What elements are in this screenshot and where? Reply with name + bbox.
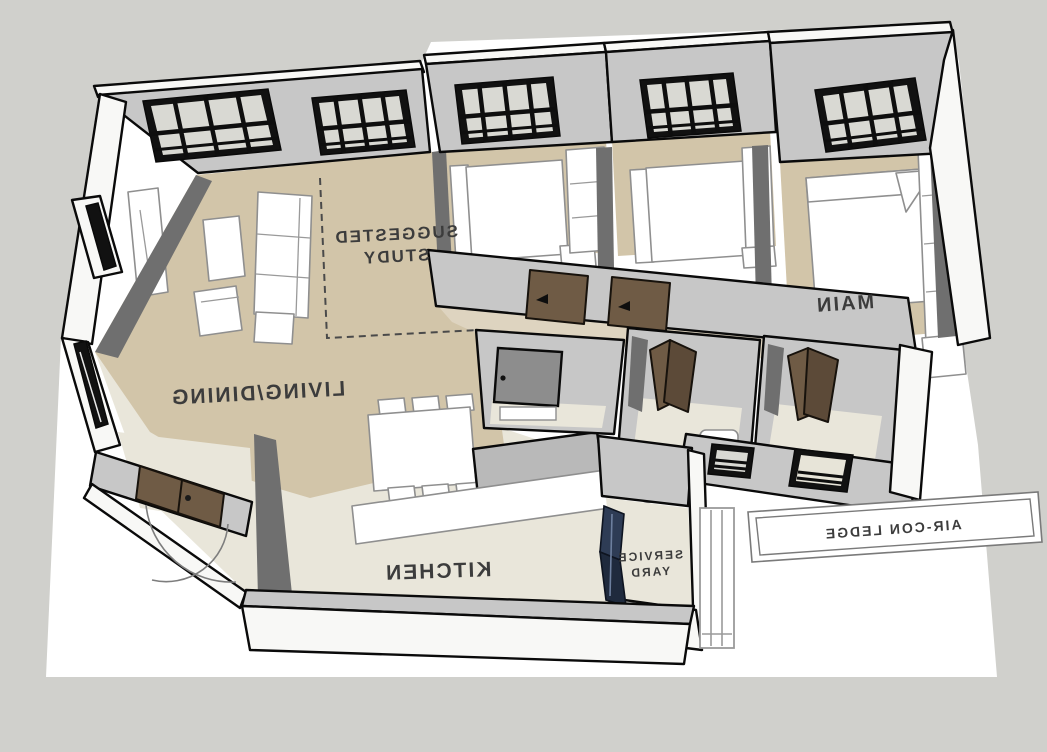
ottoman xyxy=(194,286,242,336)
bedroom1-door xyxy=(526,270,588,324)
living-window-2 xyxy=(312,90,415,155)
store-shelf xyxy=(500,407,556,420)
lounge-chair xyxy=(203,216,245,281)
bed2 xyxy=(646,161,751,262)
bedroom-divider-wall-face xyxy=(596,147,614,268)
kitchen-label: KITCHEN xyxy=(384,558,492,585)
bedroom2-door xyxy=(608,277,670,331)
bedroom1-window xyxy=(455,77,560,144)
living-window-1 xyxy=(143,89,281,162)
bath2-small-window xyxy=(789,449,853,492)
sofa xyxy=(254,192,312,318)
store-door-handle xyxy=(500,375,505,380)
service-yard-label-line2: YARD xyxy=(629,564,671,580)
main-label: MAIN xyxy=(814,291,875,317)
yard-north-wall xyxy=(598,436,692,506)
bed1 xyxy=(466,160,568,261)
main-window xyxy=(815,78,926,152)
window-well-frame xyxy=(700,508,734,648)
floorplan-3d-scene: BATH SERVICE YARD xyxy=(0,0,1047,752)
dining-table xyxy=(368,407,476,491)
dining-set xyxy=(368,394,484,504)
suggested-study-label-line2: STUDY xyxy=(361,245,430,268)
window-well-drawing xyxy=(700,508,734,648)
bedroom2-window xyxy=(640,73,741,138)
bath1-small-window xyxy=(708,444,754,478)
store-room xyxy=(476,330,624,434)
sofa-chaise xyxy=(254,312,294,344)
entrance-door-handle xyxy=(185,495,191,501)
